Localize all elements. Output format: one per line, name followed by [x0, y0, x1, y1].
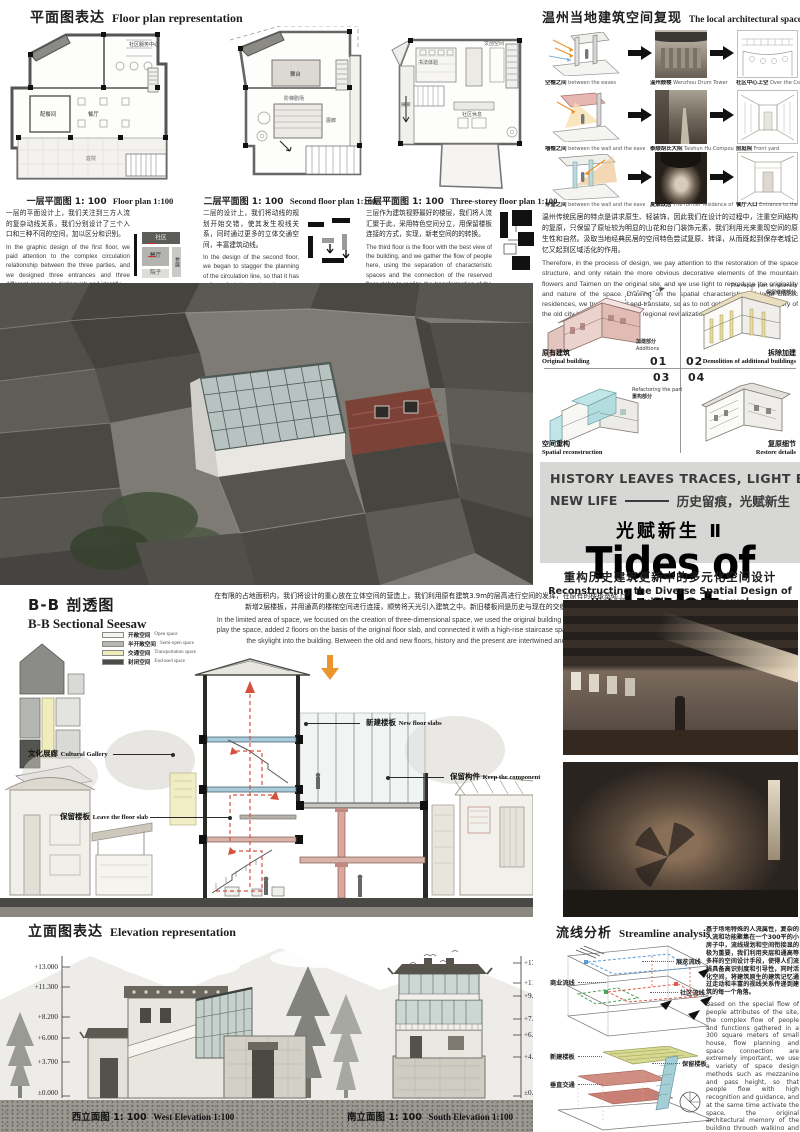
space-diagram-wall-eaves — [545, 92, 623, 142]
window-slit — [768, 780, 780, 860]
svg-text:+6.200: +6.200 — [524, 1031, 533, 1039]
label-community-flow: 社区流线 — [680, 988, 705, 997]
label-new-slab: 新建楼板 — [550, 1052, 575, 1061]
svg-text:书法体验: 书法体验 — [418, 59, 438, 66]
caption-row3-right: 餐厅入口 Entrance to the restaurant — [736, 202, 800, 209]
leader-community-flow — [650, 992, 678, 993]
divider-horizontal — [544, 368, 796, 369]
arrow-right-icon — [710, 108, 734, 122]
renewal-steps-panel: 加建部分 Additions The repair part is retain… — [540, 283, 800, 463]
caption-row1-mid: 温州鼓楼 Wenzhou Drum Tower — [650, 80, 734, 87]
label-keep-floor-slab: 保留楼板 Leave the floor slab — [60, 811, 148, 822]
caption-row2-left: 墙檐之间 between the wall and the eaves — [545, 146, 645, 153]
arch-top — [661, 152, 701, 168]
svg-text:+8.200: +8.200 — [38, 1013, 59, 1021]
space-diagram-eaves — [545, 32, 623, 76]
label-keep-slab: 保留楼板 — [682, 1059, 707, 1068]
bb-title-zh: B-B 剖透图 — [28, 594, 114, 615]
svg-text:舞台: 舞台 — [290, 70, 301, 78]
label-new-floor-slab: 新建楼板 New floor slabs — [366, 717, 442, 728]
step2-caption: 拆除加建 Demolition of additional buildings — [690, 349, 796, 366]
legend-chip-semi — [102, 641, 124, 647]
step1-caption: 原有建筑 Original building — [542, 349, 589, 366]
plan1-description: 一层的平面设计上，我们关注到三方人流的复杂动线关系，我们分别设计了三个入口和三种… — [6, 208, 130, 289]
third-floor-plan-drawing: 书法体验 文创空间 社区休息 展廊 — [370, 26, 532, 192]
south-elevation-caption: 南立面图 1: 100 South Elevation 1:100 — [335, 1109, 525, 1123]
flow-arrow — [148, 256, 156, 257]
streamline-description: 基于场地特殊的人流属性，复杂的人流和功能聚集在一个300平的小房子中，流线规划和… — [706, 926, 799, 1130]
caption-row3-mid: 夏鼐故居 The former residence of Xia Nai — [650, 202, 734, 209]
caption-row1-left: 空檐之间 between the eaves — [545, 80, 645, 87]
architecture-presentation-board: { "plans": { "header_zh": "平面图表达", "head… — [0, 0, 800, 1132]
title-line2-en: NEW LIFE — [550, 493, 617, 508]
legend-open-space: 开敞空间 Open space — [102, 630, 196, 639]
step2-note: The repair part is retained 保留修缮部分 — [690, 283, 796, 296]
arrow-right-icon — [628, 170, 652, 184]
leader-vertical-transport — [578, 1084, 602, 1085]
title-dash — [625, 500, 668, 502]
photo-former-residence — [655, 152, 707, 204]
floor-shadow — [563, 890, 798, 917]
leader-keep-component — [388, 777, 444, 778]
leader-exhibition-flow — [642, 961, 674, 962]
step3-note: Refactoring the part 重构部分 — [632, 387, 682, 400]
step4-caption: 复原细节 Restore details — [690, 440, 796, 457]
alley-path — [673, 108, 695, 144]
bb-sectional-drawing — [0, 655, 533, 917]
svg-text:阶梯剧场: 阶梯剧场 — [284, 95, 304, 102]
label-commercial-flow: 商业流线 — [550, 978, 575, 987]
west-elevation-caption: 西立面图 1: 100 West Elevation 1:100 — [58, 1109, 248, 1123]
window-slot — [571, 672, 581, 690]
second-floor-plan-drawing: 舞台 阶梯剧场 展廊 — [210, 26, 368, 192]
svg-text:+13.000: +13.000 — [524, 959, 533, 967]
step4-number: 04 — [688, 371, 705, 384]
window-slot — [589, 674, 599, 692]
svg-text:±0.000: ±0.000 — [38, 1089, 59, 1097]
svg-text:庭院: 庭院 — [86, 155, 96, 162]
caption-row1-right: 社区中心上空 Over the Community Center — [736, 80, 800, 87]
legend-semi-open-space: 半开敞空间 Semi-open space — [102, 639, 196, 648]
leader-keep-slab — [652, 1063, 680, 1064]
label-keep-component: 保留构件 Keep the component — [450, 771, 541, 782]
plan2-circulation-diagram — [302, 214, 358, 270]
svg-text:±0.000: ±0.000 — [524, 1089, 533, 1097]
leader-new-slab — [578, 1056, 602, 1057]
plan1-caption: 一层平面图 1: 100 Floor plan 1:100 — [8, 194, 192, 207]
svg-text:配餐间: 配餐间 — [40, 110, 56, 118]
plan1-desc-zh: 一层的平面设计上，我们关注到三方人流的复杂动线关系，我们分别设计了三个入口和三种… — [6, 208, 130, 240]
plan3-caption: 三层平面图 1: 100 Three-storey floor plan 1:1… — [364, 194, 540, 207]
arrow-right-icon — [710, 170, 734, 184]
svg-text:+4.200: +4.200 — [524, 1053, 533, 1061]
diagram-exhibit-block: 参展 — [172, 247, 181, 277]
subtitle-zh: 重构历史建筑更新中的多元化空间设计 — [540, 569, 800, 585]
photo-interior-gallery — [563, 600, 798, 755]
floor-plans-title-en: Floor plan representation — [112, 11, 243, 26]
flow-arrow — [148, 243, 156, 244]
floor-plans-title-zh: 平面图表达 — [30, 7, 105, 27]
sketch-community-center — [737, 30, 798, 78]
title-block: HISTORY LEAVES TRACES, LIGHT ENDOWS NEW … — [540, 462, 800, 563]
step3-number: 03 — [653, 371, 670, 384]
svg-text:展廊: 展廊 — [326, 117, 336, 124]
roof-silhouette — [655, 32, 707, 42]
sketch-restaurant-entrance — [737, 152, 798, 204]
floor-shadow — [563, 730, 798, 755]
floor-plans-header: 平面图表达 Floor plan representation — [30, 7, 243, 27]
photo-interior-stair-hall — [563, 762, 798, 917]
step1-number: 01 — [650, 355, 667, 368]
title-line2: NEW LIFE 历史留痕，光赋新生 — [550, 491, 790, 510]
label-cultural-gallery: 文化展廊 Cultural Gallery — [28, 748, 108, 759]
plan2-desc-zh: 二层的设计上，我们将动线的规划开始交错，使其发生视线关系，同时通过更多的立体交通… — [203, 208, 299, 250]
sketch-front-yard — [737, 90, 798, 144]
plan1-function-diagram: 社区 餐厅 参展 院子 — [134, 232, 190, 280]
wenzhou-desc-zh: 温州传统民居的特点是讲求原生、轻装饰，因此我们在设计的过程中，注重空间结构的复原… — [542, 212, 798, 256]
wenzhou-header: 温州当地建筑空间复现 The local architectural space… — [542, 7, 800, 26]
svg-text:+13.000: +13.000 — [34, 963, 58, 971]
svg-text:+9.400: +9.400 — [524, 992, 533, 1000]
label-vertical-transport: 垂直交通 — [550, 1080, 575, 1089]
label-exhibition-flow: 展览流线 — [676, 957, 701, 966]
plan3-block-diagram — [498, 210, 534, 274]
arrow-right-icon — [710, 46, 734, 60]
svg-text:+11.300: +11.300 — [34, 983, 58, 991]
photo-alley — [655, 90, 707, 144]
legend-chip-open — [102, 632, 124, 638]
streamline-title-en: Streamline analysis — [619, 928, 710, 940]
svg-text:+11.560: +11.560 — [524, 979, 533, 987]
streamline-title-zh: 流线分析 — [556, 922, 612, 941]
streamline-header: 流线分析 Streamline analysis — [556, 922, 710, 941]
aerial-photo-rooftops — [0, 283, 533, 585]
streamline-desc-en: Based on the special flow of people attr… — [706, 1001, 799, 1130]
first-floor-plan-drawing: 社区服务中心 配餐间 餐厅 庭院 — [8, 26, 172, 192]
photo-wenzhou-drum-tower — [655, 30, 707, 78]
leader-cultural-gallery — [113, 754, 173, 755]
svg-text:文创空间: 文创空间 — [484, 40, 504, 47]
arrow-right-icon — [628, 108, 652, 122]
window-slot — [625, 678, 635, 696]
title-line1: HISTORY LEAVES TRACES, LIGHT ENDOWS — [550, 471, 790, 486]
leader-keep-floor-slab — [150, 817, 230, 818]
plan3-desc-zh: 三层作为建筑视野最好的楼层，我们将人流汇聚于此，采用特色空间分立，用保留楼板连接… — [366, 208, 492, 240]
caption-row3-left: 穿堂之间 between the wall and the eaves — [545, 202, 645, 209]
title-line2-zh: 历史留痕，光赋新生 — [677, 491, 790, 510]
svg-text:社区休息: 社区休息 — [462, 111, 482, 118]
diagram-axis-bar — [134, 234, 137, 276]
facade-columns — [661, 48, 701, 68]
svg-text:+3.700: +3.700 — [38, 1058, 59, 1066]
step1-note: 加建部分 Additions — [636, 339, 659, 352]
arrow-right-icon — [628, 46, 652, 60]
leader-commercial-flow — [578, 982, 606, 983]
spiral-stair-silhouette — [633, 822, 703, 892]
window-slot — [607, 676, 617, 694]
step3-caption: 空间重构 Spatial reconstruction — [542, 440, 602, 457]
leader-new-floor-slab — [306, 723, 360, 724]
space-diagram-passage — [545, 154, 623, 200]
wenzhou-title-zh: 温州当地建筑空间复现 — [542, 7, 682, 26]
streamline-desc-zh: 基于场地特殊的人流属性，复杂的人流和功能聚集在一个300平的小房子中，流线规划和… — [706, 926, 799, 997]
elevations-drawing: +13.000 +11.300 +8.200 +6.000 +3.700 ±0.… — [0, 938, 533, 1100]
wenzhou-title-en: The local architectural space of Wenzhou… — [689, 14, 800, 24]
svg-text:+6.000: +6.000 — [38, 1034, 59, 1042]
alley-wall — [655, 90, 669, 144]
svg-text:展廊: 展廊 — [401, 101, 411, 108]
svg-text:餐厅: 餐厅 — [88, 110, 99, 118]
statue-silhouette — [675, 696, 685, 730]
plan2-caption: 二层平面图 1: 100 Second floor plan 1:100 — [200, 194, 380, 207]
svg-text:社区服务中心: 社区服务中心 — [129, 41, 159, 48]
svg-text:+7.200: +7.200 — [524, 1015, 533, 1023]
diagram-yard-block: 院子 — [142, 269, 169, 278]
